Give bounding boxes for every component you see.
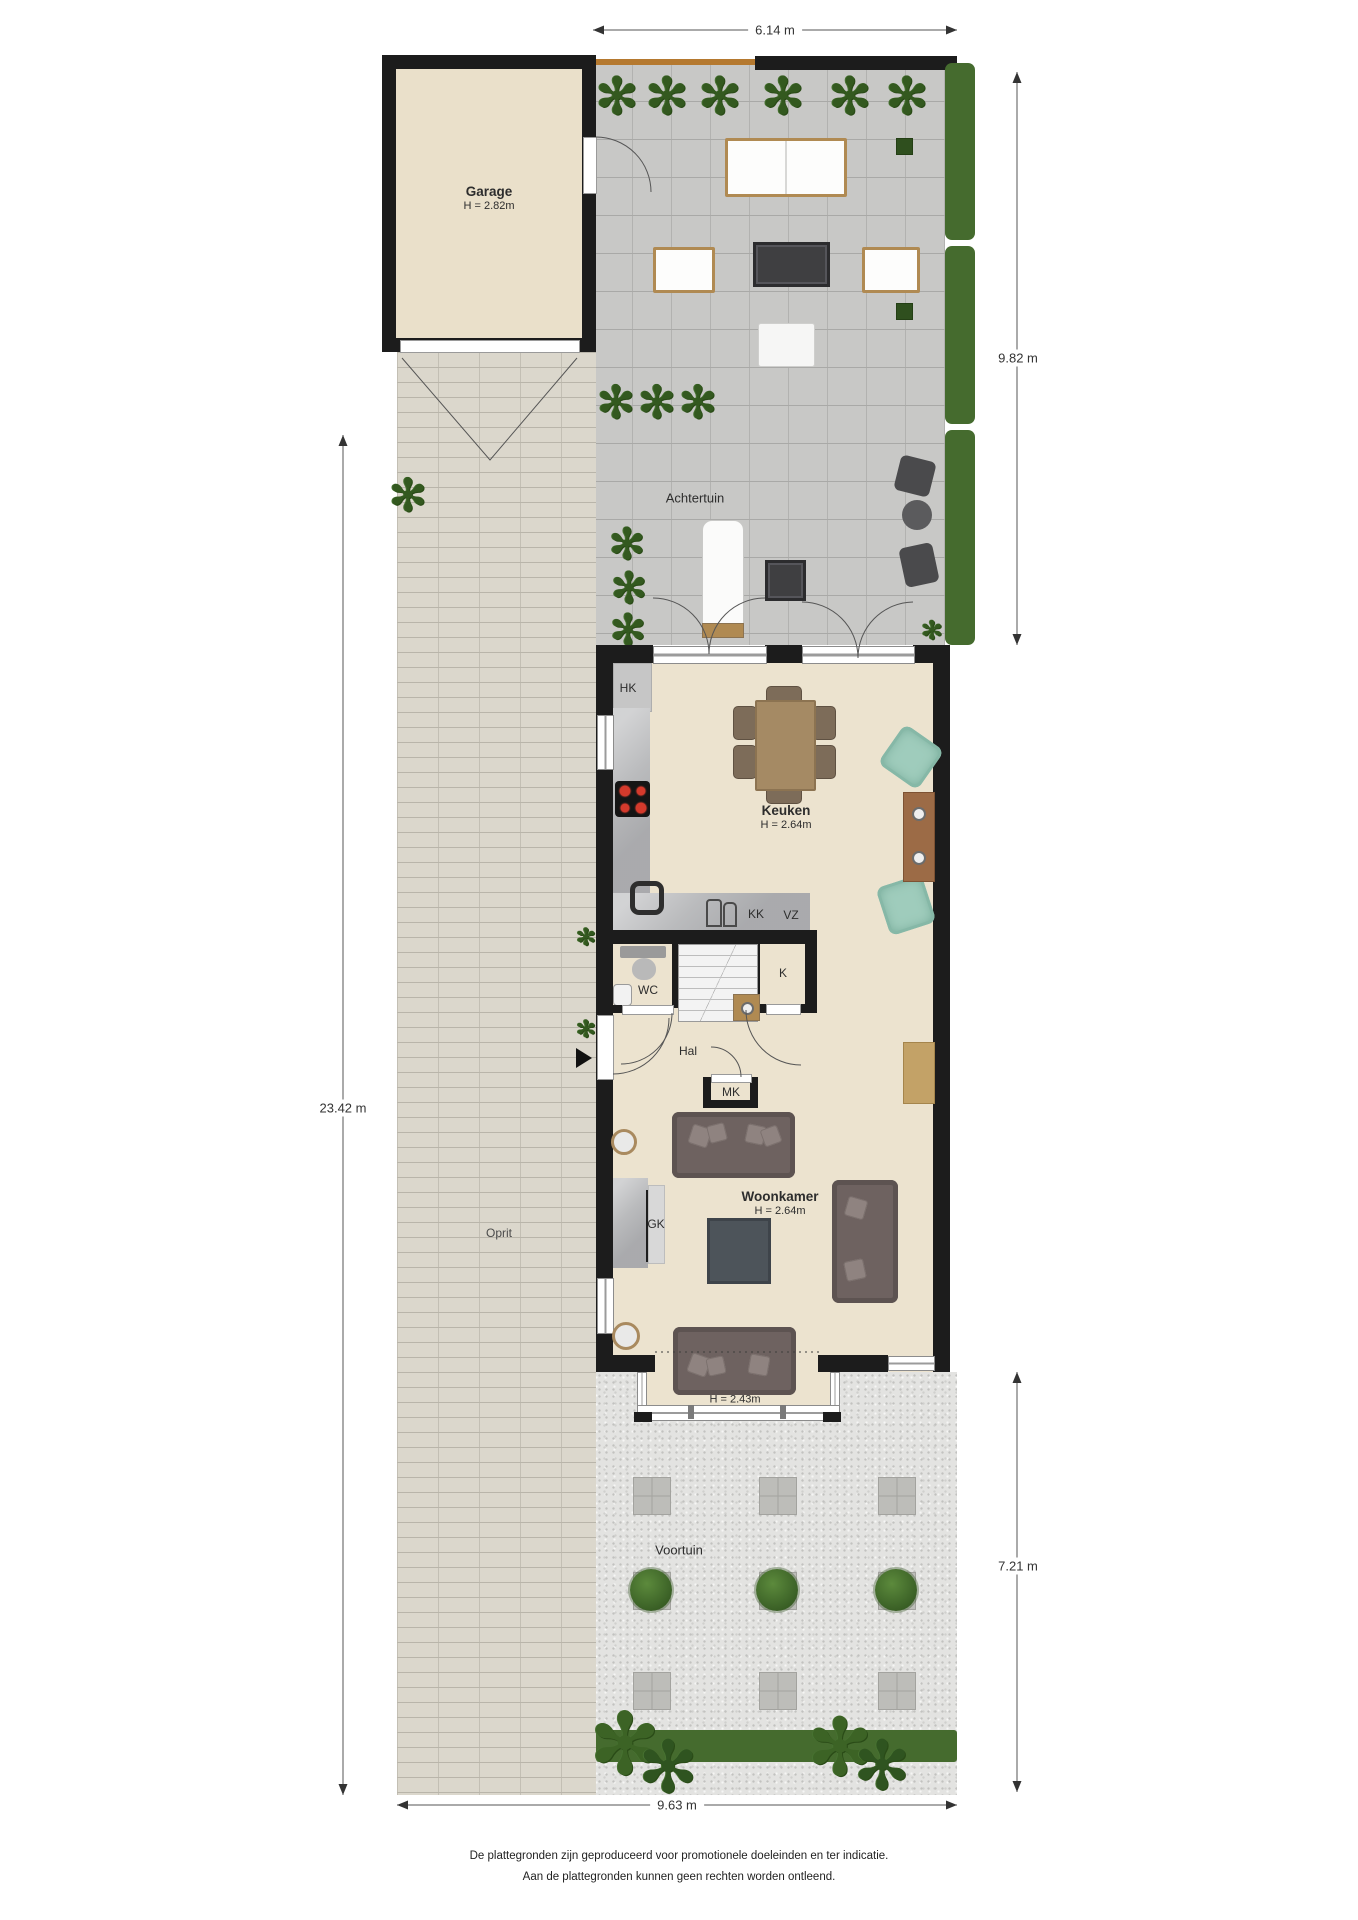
patio-armchair-left <box>653 247 715 293</box>
plant-icon: ✻ <box>885 71 929 123</box>
stove-icon <box>615 781 650 817</box>
paver <box>759 1477 797 1515</box>
bay-height-label: H = 2.43m <box>709 1393 760 1406</box>
room-name: Voortuin <box>655 1543 703 1558</box>
kk-label: KK <box>748 907 764 921</box>
lounger-foot <box>702 623 744 638</box>
pillow <box>706 1122 728 1144</box>
k-label: K <box>779 966 787 980</box>
voortuin-label: Voortuin <box>655 1543 703 1558</box>
closet-door <box>766 1004 801 1015</box>
floorplan-canvas: ✻ ✻ ✻ ✻ ✻ ✻ ✻ ✻ ✻ ✻ ✻ ✻ ✻ ✻ ✻ ✻ <box>0 0 1358 1920</box>
dining-chair <box>733 745 757 779</box>
front-window <box>888 1356 935 1371</box>
kitchen-appliance-icon <box>723 902 737 927</box>
kitchen-appliance-icon <box>706 899 722 927</box>
hk-label: HK <box>620 681 637 695</box>
toilet-bowl <box>632 958 656 980</box>
garage-wall-top <box>382 55 596 69</box>
room-name: Woonkamer <box>741 1189 818 1204</box>
mk-wall <box>703 1100 758 1108</box>
plant-icon: ✻ <box>854 1732 911 1800</box>
knob-icon <box>741 1002 754 1015</box>
vz-label: VZ <box>783 908 798 922</box>
sideboard <box>903 792 935 882</box>
plant-icon: ✻ <box>609 523 646 567</box>
plant-icon: ✻ <box>698 71 742 123</box>
paver <box>633 1477 671 1515</box>
wc-label: WC <box>638 983 658 997</box>
plant-icon: ✻ <box>576 926 596 950</box>
patio-sofa <box>725 138 847 197</box>
pillow <box>843 1258 867 1282</box>
house-wall-top <box>765 645 802 663</box>
knob-icon <box>912 807 926 821</box>
front-door <box>597 1015 614 1080</box>
livingroom-window <box>597 1278 614 1334</box>
dimension-plot-depth: 23.42 m <box>313 1100 374 1117</box>
inner-wall <box>613 1005 622 1013</box>
plant-icon: ✻ <box>595 71 639 123</box>
dimension-bottom-width: 9.63 m <box>650 1797 704 1814</box>
hedge-segment <box>945 246 975 424</box>
toilet-tank <box>620 946 666 958</box>
keuken-label: Keuken H = 2.64m <box>760 803 811 831</box>
dimension-front-depth: 7.21 m <box>991 1558 1045 1575</box>
hedge-segment <box>945 63 975 240</box>
stair-landing <box>733 994 760 1021</box>
house-wall-top <box>913 645 950 663</box>
garage-side-door <box>583 137 597 194</box>
cabinet <box>903 1042 935 1104</box>
coffee-table <box>707 1218 771 1284</box>
bush-icon <box>875 1569 917 1611</box>
plant-icon: ✻ <box>597 379 636 425</box>
dimension-garden-depth: 9.82 m <box>991 350 1045 367</box>
plant-icon: ✻ <box>645 71 689 123</box>
dining-chair <box>733 706 757 740</box>
house-wall-front <box>818 1355 888 1372</box>
garage-wall-left <box>382 55 396 352</box>
patio-double-door <box>653 646 767 664</box>
mk-label: MK <box>722 1085 740 1099</box>
paver <box>878 1672 916 1710</box>
patio-table-round <box>902 500 932 530</box>
plant-icon: ✻ <box>679 379 718 425</box>
paver <box>878 1477 916 1515</box>
plant-icon: ✻ <box>921 617 943 643</box>
side-table <box>611 1129 637 1155</box>
footer-disclaimer-line1: De plattegronden zijn geproduceerd voor … <box>0 1850 1358 1862</box>
pillow <box>705 1355 726 1376</box>
plant-icon: ✻ <box>828 71 872 123</box>
bush-icon <box>756 1569 798 1611</box>
plant-icon: ✻ <box>389 472 428 518</box>
side-table <box>612 1322 640 1350</box>
sink-icon <box>630 881 664 915</box>
bay-corner <box>823 1412 841 1422</box>
bay-corner <box>634 1412 652 1422</box>
knob-icon <box>912 851 926 865</box>
planter-box <box>896 138 913 155</box>
inner-wall <box>805 930 817 1013</box>
room-height: H = 2.64m <box>760 819 811 831</box>
sun-lounger <box>702 520 744 638</box>
kitchen-window <box>597 715 614 770</box>
bush-icon <box>630 1569 672 1611</box>
wc-door <box>622 1005 674 1015</box>
sofa-top <box>672 1112 795 1178</box>
room-name: Achtertuin <box>666 491 725 506</box>
oprit-label: Oprit <box>486 1226 512 1240</box>
dimension-top: 6.14 m <box>748 22 802 39</box>
sofa-bottom <box>673 1327 796 1395</box>
house-wall-top <box>596 645 653 663</box>
plant-icon: ✻ <box>638 1732 698 1804</box>
room-height: H = 2.64m <box>741 1205 818 1217</box>
patio-ottoman <box>758 323 815 367</box>
room-name: Garage <box>463 184 514 199</box>
bay-window-front <box>637 1405 840 1421</box>
entrance-arrow-icon <box>576 1048 592 1068</box>
driveway <box>397 352 596 1795</box>
hedge-segment <box>945 430 975 645</box>
plant-icon: ✻ <box>611 567 648 611</box>
patio-armchair-right <box>862 247 920 293</box>
footer-disclaimer-line2: Aan de plattegronden kunnen geen rechten… <box>0 1871 1358 1883</box>
inner-wall <box>613 930 817 944</box>
pillow <box>747 1353 770 1376</box>
planter-box <box>896 303 913 320</box>
wc-sink <box>613 984 632 1006</box>
plant-icon: ✻ <box>638 379 677 425</box>
house-wall-front <box>613 1355 655 1372</box>
bay-mullion <box>780 1405 786 1419</box>
plant-icon: ✻ <box>761 71 805 123</box>
dining-table <box>755 700 816 791</box>
hal-label: Hal <box>679 1044 697 1058</box>
achtertuin-label: Achtertuin <box>666 491 725 506</box>
garage-door <box>400 340 580 353</box>
patio-double-door <box>802 646 915 664</box>
pillow <box>844 1196 869 1221</box>
woonkamer-label: Woonkamer H = 2.64m <box>741 1189 818 1217</box>
garden-fence <box>593 59 757 65</box>
room-height: H = 2.43m <box>709 1394 760 1406</box>
gk-unit <box>613 1178 648 1268</box>
gk-label: GK <box>647 1217 664 1231</box>
paver <box>759 1672 797 1710</box>
room-height: H = 2.82m <box>463 200 514 212</box>
garage-wall-right <box>582 55 596 352</box>
patio-side-table <box>765 560 806 601</box>
mk-door <box>711 1074 752 1083</box>
garage-label: Garage H = 2.82m <box>463 184 514 212</box>
sofa-right <box>832 1180 898 1303</box>
bay-mullion <box>688 1405 694 1419</box>
room-name: Keuken <box>760 803 811 818</box>
plant-icon: ✻ <box>576 1018 596 1042</box>
patio-coffee-table <box>753 242 830 287</box>
